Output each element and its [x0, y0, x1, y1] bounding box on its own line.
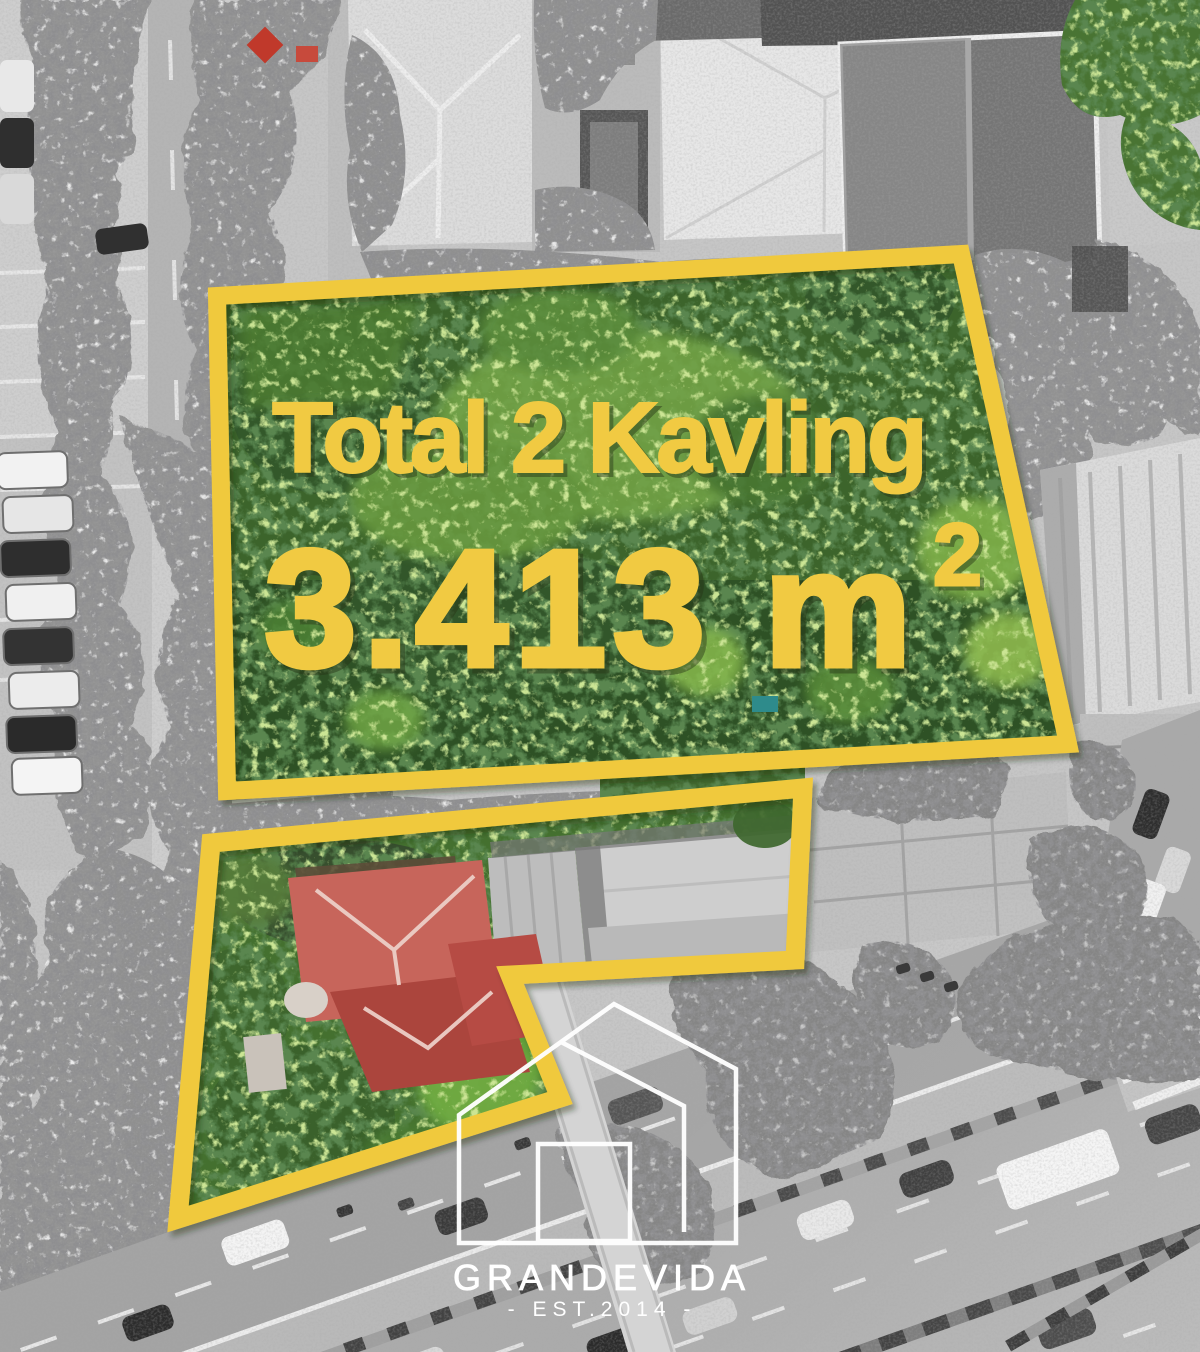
svg-text:GRANDEVIDA: GRANDEVIDA: [453, 1257, 751, 1298]
svg-text:2: 2: [933, 505, 982, 604]
svg-text:- EST.2014 -: - EST.2014 -: [508, 1298, 697, 1321]
svg-text:Total 2 Kavling: Total 2 Kavling: [272, 382, 928, 494]
